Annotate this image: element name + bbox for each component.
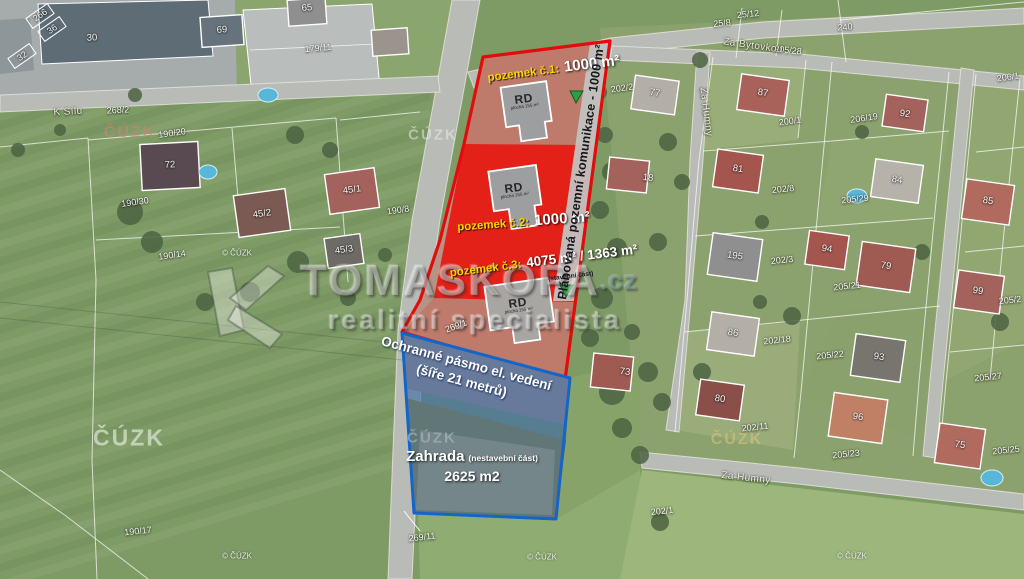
tree [11, 143, 25, 157]
tree [128, 88, 142, 102]
tree [755, 215, 769, 229]
house-footprint [871, 159, 924, 203]
tree [287, 251, 309, 273]
house-footprint [590, 353, 633, 391]
tree [914, 244, 930, 260]
tree [196, 293, 214, 311]
tree [674, 174, 690, 190]
tree [653, 393, 671, 411]
house-footprint [934, 423, 985, 469]
house-footprint [713, 149, 764, 193]
house-footprint [233, 189, 290, 238]
tree [631, 446, 649, 464]
tree [649, 233, 667, 251]
tree [141, 231, 163, 253]
pool [981, 470, 1003, 486]
house-footprint [828, 392, 888, 443]
pool [258, 88, 278, 102]
house-footprint [707, 312, 760, 356]
tree [117, 199, 143, 225]
tree [753, 295, 767, 309]
house-footprint [324, 168, 379, 215]
tree [286, 126, 304, 144]
tree [322, 142, 338, 158]
house-footprint [696, 379, 745, 421]
house-footprint [140, 142, 200, 191]
house-footprint [324, 234, 364, 269]
house-footprint [287, 0, 327, 26]
house-footprint [961, 179, 1014, 225]
tree [783, 307, 801, 325]
tree [591, 201, 609, 219]
tree [659, 133, 677, 151]
tree [624, 324, 640, 340]
pool [199, 165, 217, 179]
house-footprint [856, 241, 916, 292]
tree [340, 290, 356, 306]
aerial-basemap [0, 0, 1024, 579]
house-footprint [805, 230, 849, 269]
house-footprint [850, 334, 905, 383]
tree [378, 248, 392, 262]
tree [693, 363, 711, 381]
house-footprint [737, 74, 790, 116]
house-footprint [707, 233, 762, 282]
pool [847, 189, 867, 203]
tree [591, 287, 613, 309]
house-footprint [631, 75, 679, 115]
house-footprint [882, 94, 928, 132]
tree [855, 125, 869, 139]
tree [607, 238, 627, 258]
house-footprint [200, 15, 244, 48]
tree [54, 124, 66, 136]
house-footprint [606, 157, 649, 193]
house-footprint [371, 28, 409, 56]
tree [581, 329, 599, 347]
house-footprint [954, 270, 1005, 314]
tree [612, 418, 632, 438]
tree [692, 52, 708, 68]
tree [651, 513, 669, 531]
tree [638, 362, 658, 382]
map-canvas[interactable]: TOMASKOPA.cz realitní specialista 25/122… [0, 0, 1024, 579]
tree [991, 313, 1009, 331]
